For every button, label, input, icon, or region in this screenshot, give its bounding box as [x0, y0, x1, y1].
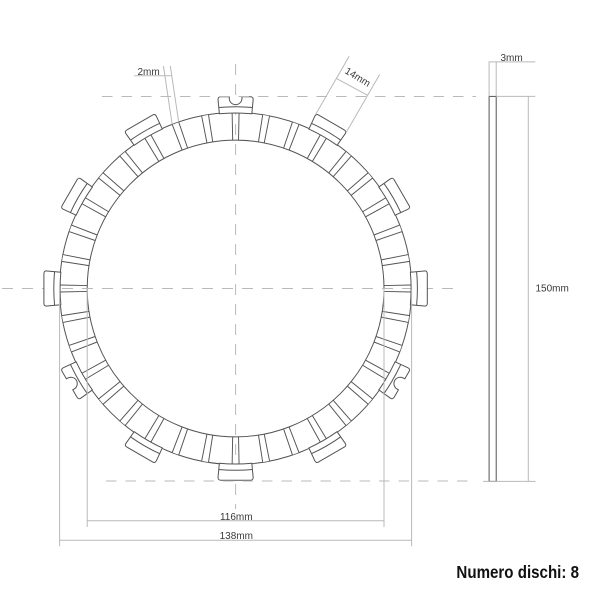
svg-text:138mm: 138mm: [220, 531, 253, 542]
svg-text:Numero dischi: 8: Numero dischi: 8: [456, 562, 579, 583]
svg-text:150mm: 150mm: [536, 284, 569, 295]
svg-text:116mm: 116mm: [220, 512, 253, 523]
svg-text:3mm: 3mm: [501, 53, 523, 64]
svg-text:2mm: 2mm: [138, 67, 160, 78]
